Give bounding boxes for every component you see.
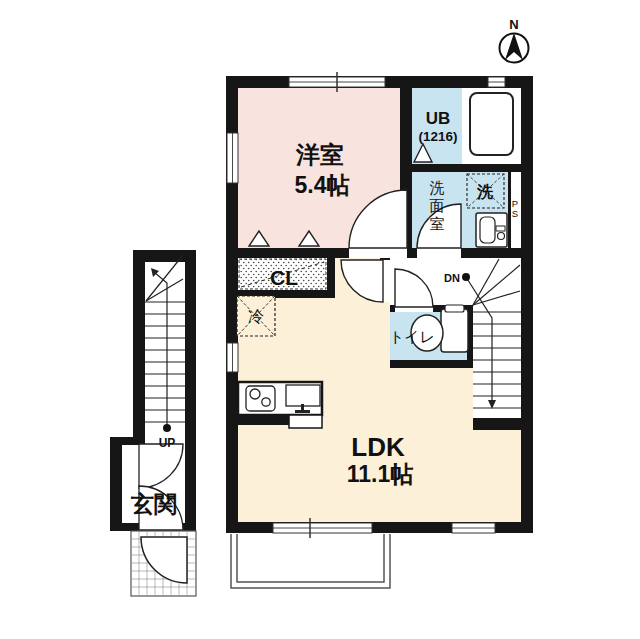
stairs-down-label: DN	[444, 272, 460, 284]
stairs-down-well	[473, 258, 521, 418]
doorway-washroom	[417, 248, 461, 258]
doorway-western	[349, 248, 407, 258]
entrance-label: 玄関	[130, 491, 177, 517]
stairs-up-label: UP	[159, 436, 176, 450]
kitchen-half-wall	[238, 415, 289, 425]
floor-plan-svg: N 洋室 5.4帖 LDK 11.1帖 UB (1216) 洗 面 室 洗 冷 …	[0, 0, 640, 639]
washroom-label-1: 洗	[430, 179, 445, 196]
bathtub-icon	[470, 93, 513, 155]
unit-bath-size-label: (1216)	[418, 129, 457, 144]
unit-bath-label: UB	[426, 109, 451, 128]
floor-plan: N 洋室 5.4帖 LDK 11.1帖 UB (1216) 洗 面 室 洗 冷 …	[0, 0, 640, 639]
ldk-label: LDK	[351, 432, 405, 462]
pipe-space-label-2: S	[512, 208, 518, 219]
western-room-size-label: 5.4帖	[295, 172, 350, 198]
toilet-label: トイレ	[389, 328, 435, 345]
kitchen-counter	[238, 382, 322, 428]
room-ldk-under-stairs	[473, 430, 521, 522]
fridge-label: 冷	[248, 308, 264, 325]
western-room-label: 洋室	[295, 141, 344, 168]
washroom-label-3: 室	[430, 215, 445, 232]
sink-icon	[476, 213, 507, 247]
stove-icon	[246, 386, 275, 411]
ldk-size-label: 11.1帖	[347, 461, 414, 487]
washroom-label-2: 面	[430, 197, 445, 214]
stairs-up-dot	[163, 424, 171, 432]
stairs-down-dot	[462, 273, 470, 281]
kitchen-step	[289, 415, 322, 428]
washer-label: 洗	[476, 183, 494, 200]
closet-label: CL	[270, 266, 298, 289]
compass-north-label: N	[509, 17, 518, 32]
porch	[131, 531, 196, 596]
